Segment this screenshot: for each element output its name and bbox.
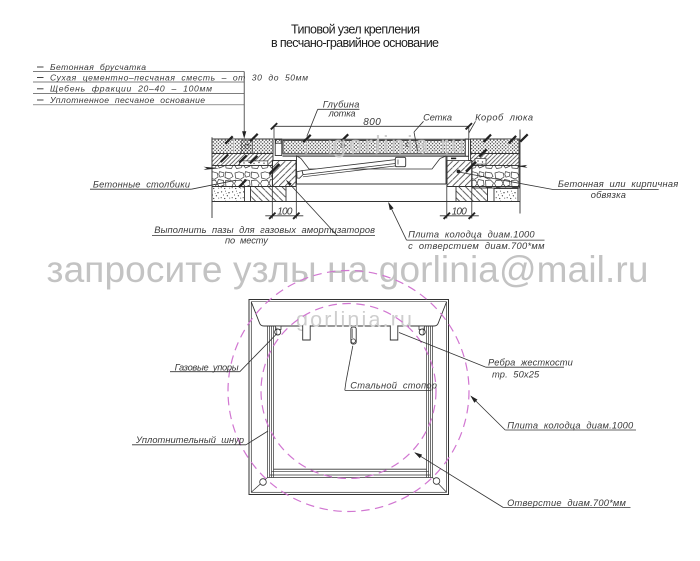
- svg-text:Бетонные столбики: Бетонные столбики: [93, 179, 190, 189]
- svg-text:800: 800: [363, 117, 381, 128]
- svg-text:в песчано-гравийное основание: в песчано-гравийное основание: [271, 36, 439, 50]
- svg-text:100: 100: [452, 207, 468, 218]
- svg-text:с отверстием диам.700*мм: с отверстием диам.700*мм: [408, 241, 545, 251]
- svg-text:gorlinia.ru: gorlinia.ru: [333, 132, 465, 159]
- svg-text:Ребра жесткости: Ребра жесткости: [488, 358, 573, 368]
- svg-text:Выполнить пазы для газовых: Выполнить пазы для газовых амортизаторов: [154, 225, 375, 235]
- svg-text:100: 100: [277, 207, 293, 218]
- svg-text:Уплотненное песчаное основан: Уплотненное песчаное основание: [49, 95, 205, 105]
- svg-text:Бетонная брусчатка: Бетонная брусчатка: [50, 62, 146, 72]
- svg-text:Газовые упоры: Газовые упоры: [175, 362, 239, 372]
- svg-text:Плита колодца диам.1000: Плита колодца диам.1000: [507, 421, 634, 431]
- svg-text:Отверстие диам.700*мм: Отверстие диам.700*мм: [507, 498, 626, 508]
- svg-text:запросите узлы на gorlinia@mai: запросите узлы на gorlinia@mail.ru: [47, 249, 649, 290]
- svg-text:Щебень фракции 20–40 – 100: Щебень фракции 20–40 – 100мм: [50, 84, 212, 94]
- svg-text:Типовой узел крепления: Типовой узел крепления: [291, 23, 420, 37]
- svg-text:Плита колодца диам.1000: Плита колодца диам.1000: [408, 229, 535, 239]
- svg-text:Сетка: Сетка: [423, 112, 452, 122]
- svg-text:Стальной стопор: Стальной стопор: [350, 380, 437, 390]
- svg-text:Уплотнительный шнур: Уплотнительный шнур: [135, 435, 244, 445]
- svg-text:лотка: лотка: [328, 109, 356, 119]
- svg-text:по месту: по месту: [225, 236, 269, 246]
- svg-text:Короб люка: Короб люка: [475, 112, 533, 122]
- svg-text:Бетонная или кирпичная: Бетонная или кирпичная: [558, 179, 678, 189]
- svg-text:Сухая цементно–песчаная смес: Сухая цементно–песчаная сместь – от 30 д…: [50, 72, 308, 82]
- svg-text:тр. 50х25: тр. 50х25: [492, 370, 540, 380]
- svg-text:обвязка: обвязка: [591, 190, 626, 200]
